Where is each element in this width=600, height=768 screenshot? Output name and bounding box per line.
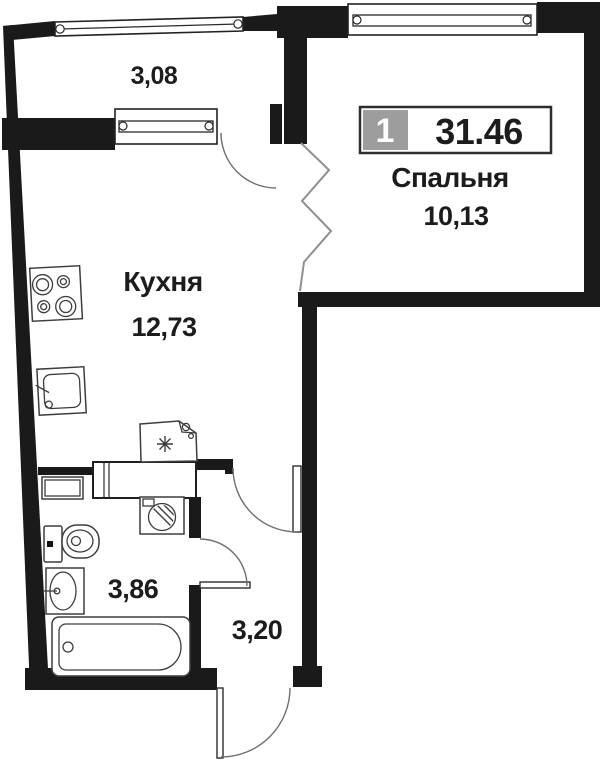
bedroom-window-cap-right: [523, 16, 531, 24]
unit-total-area: 31.46: [435, 111, 523, 152]
kitchen-name-label: Кухня: [123, 266, 202, 297]
unit-label-box: 1 31.46: [360, 107, 551, 153]
balcony-door-arc: [221, 133, 276, 188]
kitchen-area-label: 12,73: [131, 312, 197, 342]
bedroom-window-cap-left: [353, 16, 361, 24]
bedroom-name-label: Спальня: [391, 162, 508, 193]
hallway-area-label: 3,20: [232, 615, 283, 645]
balcony-window-cap-left: [56, 25, 64, 33]
bathroom-shelf: [42, 477, 83, 499]
balcony-bottom-wall: [2, 118, 115, 150]
bathroom-door-arc: [200, 539, 247, 586]
zigzag-divider: [300, 143, 331, 291]
bathroom-right-wall-upper: [189, 497, 201, 538]
mid-right-wall: [302, 292, 317, 687]
toilet-icon: [44, 525, 99, 562]
bedroom-window: [348, 4, 537, 35]
bottom-right-stub: [293, 666, 322, 687]
floor-plan-svg: 1 31.46 3,08 Спальня 10,13 Кухня 12,73 3…: [0, 0, 600, 768]
balcony-window-cap-right: [234, 20, 242, 28]
kitchen-hall-wall-jog: [225, 459, 233, 474]
entrance-door-arc: [221, 688, 290, 757]
toilet-button: [47, 541, 53, 547]
balcony-bedroom-wall-top: [277, 6, 348, 38]
right-wall: [584, 2, 600, 307]
doors: [200, 133, 301, 758]
bathroom-right-wall-lower: [189, 585, 201, 670]
kitchen-hall-door-arc: [233, 468, 297, 532]
unit-badge-number: 1: [376, 112, 395, 150]
balcony-bedroom-wall-strip: [284, 38, 307, 144]
floor-plan: 1 31.46 3,08 Спальня 10,13 Кухня 12,73 3…: [0, 0, 600, 768]
vent-shaft: [93, 462, 196, 498]
stove-icon: [30, 266, 83, 322]
balcony-inner-window-cap-left: [119, 122, 127, 130]
top-left-wall: [3, 21, 55, 40]
balcony-inner-window-cap-right: [205, 122, 213, 130]
bedroom-bottom-wall: [298, 292, 600, 307]
fridge-icon: [140, 421, 197, 462]
bedroom-area-label: 10,13: [423, 201, 489, 231]
balcony-top-wall-right: [243, 14, 277, 31]
balcony-inner-window: [115, 109, 217, 144]
balcony-area-label: 3,08: [131, 62, 178, 90]
bathroom-door-leaf: [200, 582, 250, 588]
bathroom-area-label: 3,86: [108, 574, 159, 604]
bathroom-sink-icon: [44, 568, 84, 614]
balcony-door-jamb: [270, 104, 282, 144]
bathroom-top-wall: [38, 467, 93, 475]
entrance-door-leaf: [217, 688, 223, 758]
walls: [2, 2, 600, 690]
kitchen-sink-icon: [35, 367, 86, 416]
kitchen-hall-door-leaf: [293, 466, 301, 532]
bathtub-icon: [52, 617, 190, 676]
